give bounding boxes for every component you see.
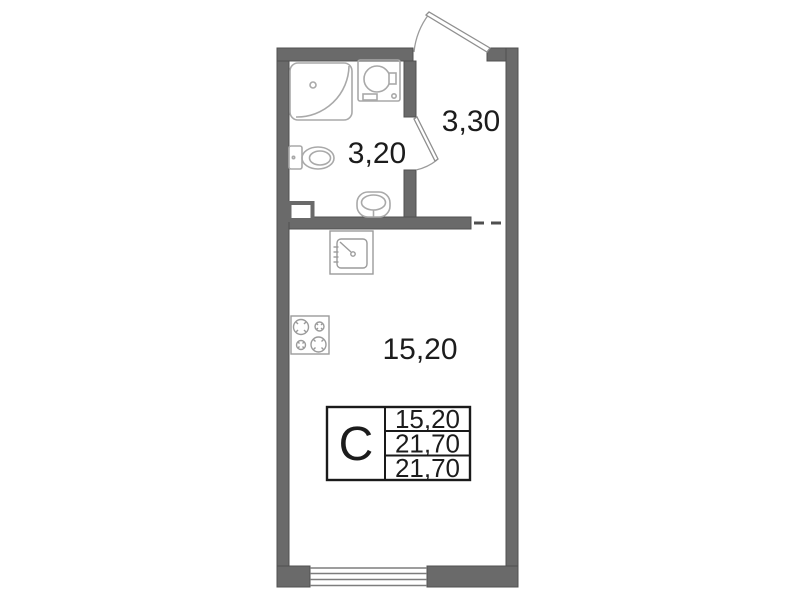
- stove-icon: [291, 316, 329, 354]
- bathroom-sink-icon: [357, 192, 390, 217]
- ventilation-shaft: [290, 203, 313, 220]
- wall-bathroom-right-upper: [404, 61, 416, 117]
- wall-right: [506, 48, 518, 587]
- washing-machine-icon: [358, 60, 400, 101]
- bathroom-door-icon: [414, 117, 438, 170]
- hallway-area-label: 3,30: [442, 105, 500, 138]
- wall-bottom-left: [277, 566, 310, 587]
- stamp-total-area-with-balcony-value: 21,70: [395, 453, 460, 483]
- window-icon: [310, 568, 427, 586]
- bathroom-area-label: 3,20: [348, 137, 406, 170]
- shower-cabin-icon: [290, 63, 352, 120]
- wall-interior-horizontal: [289, 217, 471, 229]
- wall-top-bathroom: [277, 48, 413, 61]
- toilet-icon: [289, 146, 334, 169]
- area-stamp-table: С 15,20 21,70 21,70: [327, 404, 470, 483]
- kitchen-sink-icon: [330, 231, 373, 274]
- wall-left: [277, 48, 289, 587]
- wall-bottom-right: [427, 566, 518, 587]
- entrance-door-icon: [414, 12, 490, 52]
- floor-plan-image: 3,20 3,30 15,20 С 15,20 21,70 21,70: [0, 0, 799, 600]
- living-room-area-label: 15,20: [382, 333, 457, 366]
- floor-plan-drawing: 3,20 3,30 15,20 С 15,20 21,70 21,70: [0, 0, 799, 600]
- apartment-type-label: С: [339, 418, 374, 471]
